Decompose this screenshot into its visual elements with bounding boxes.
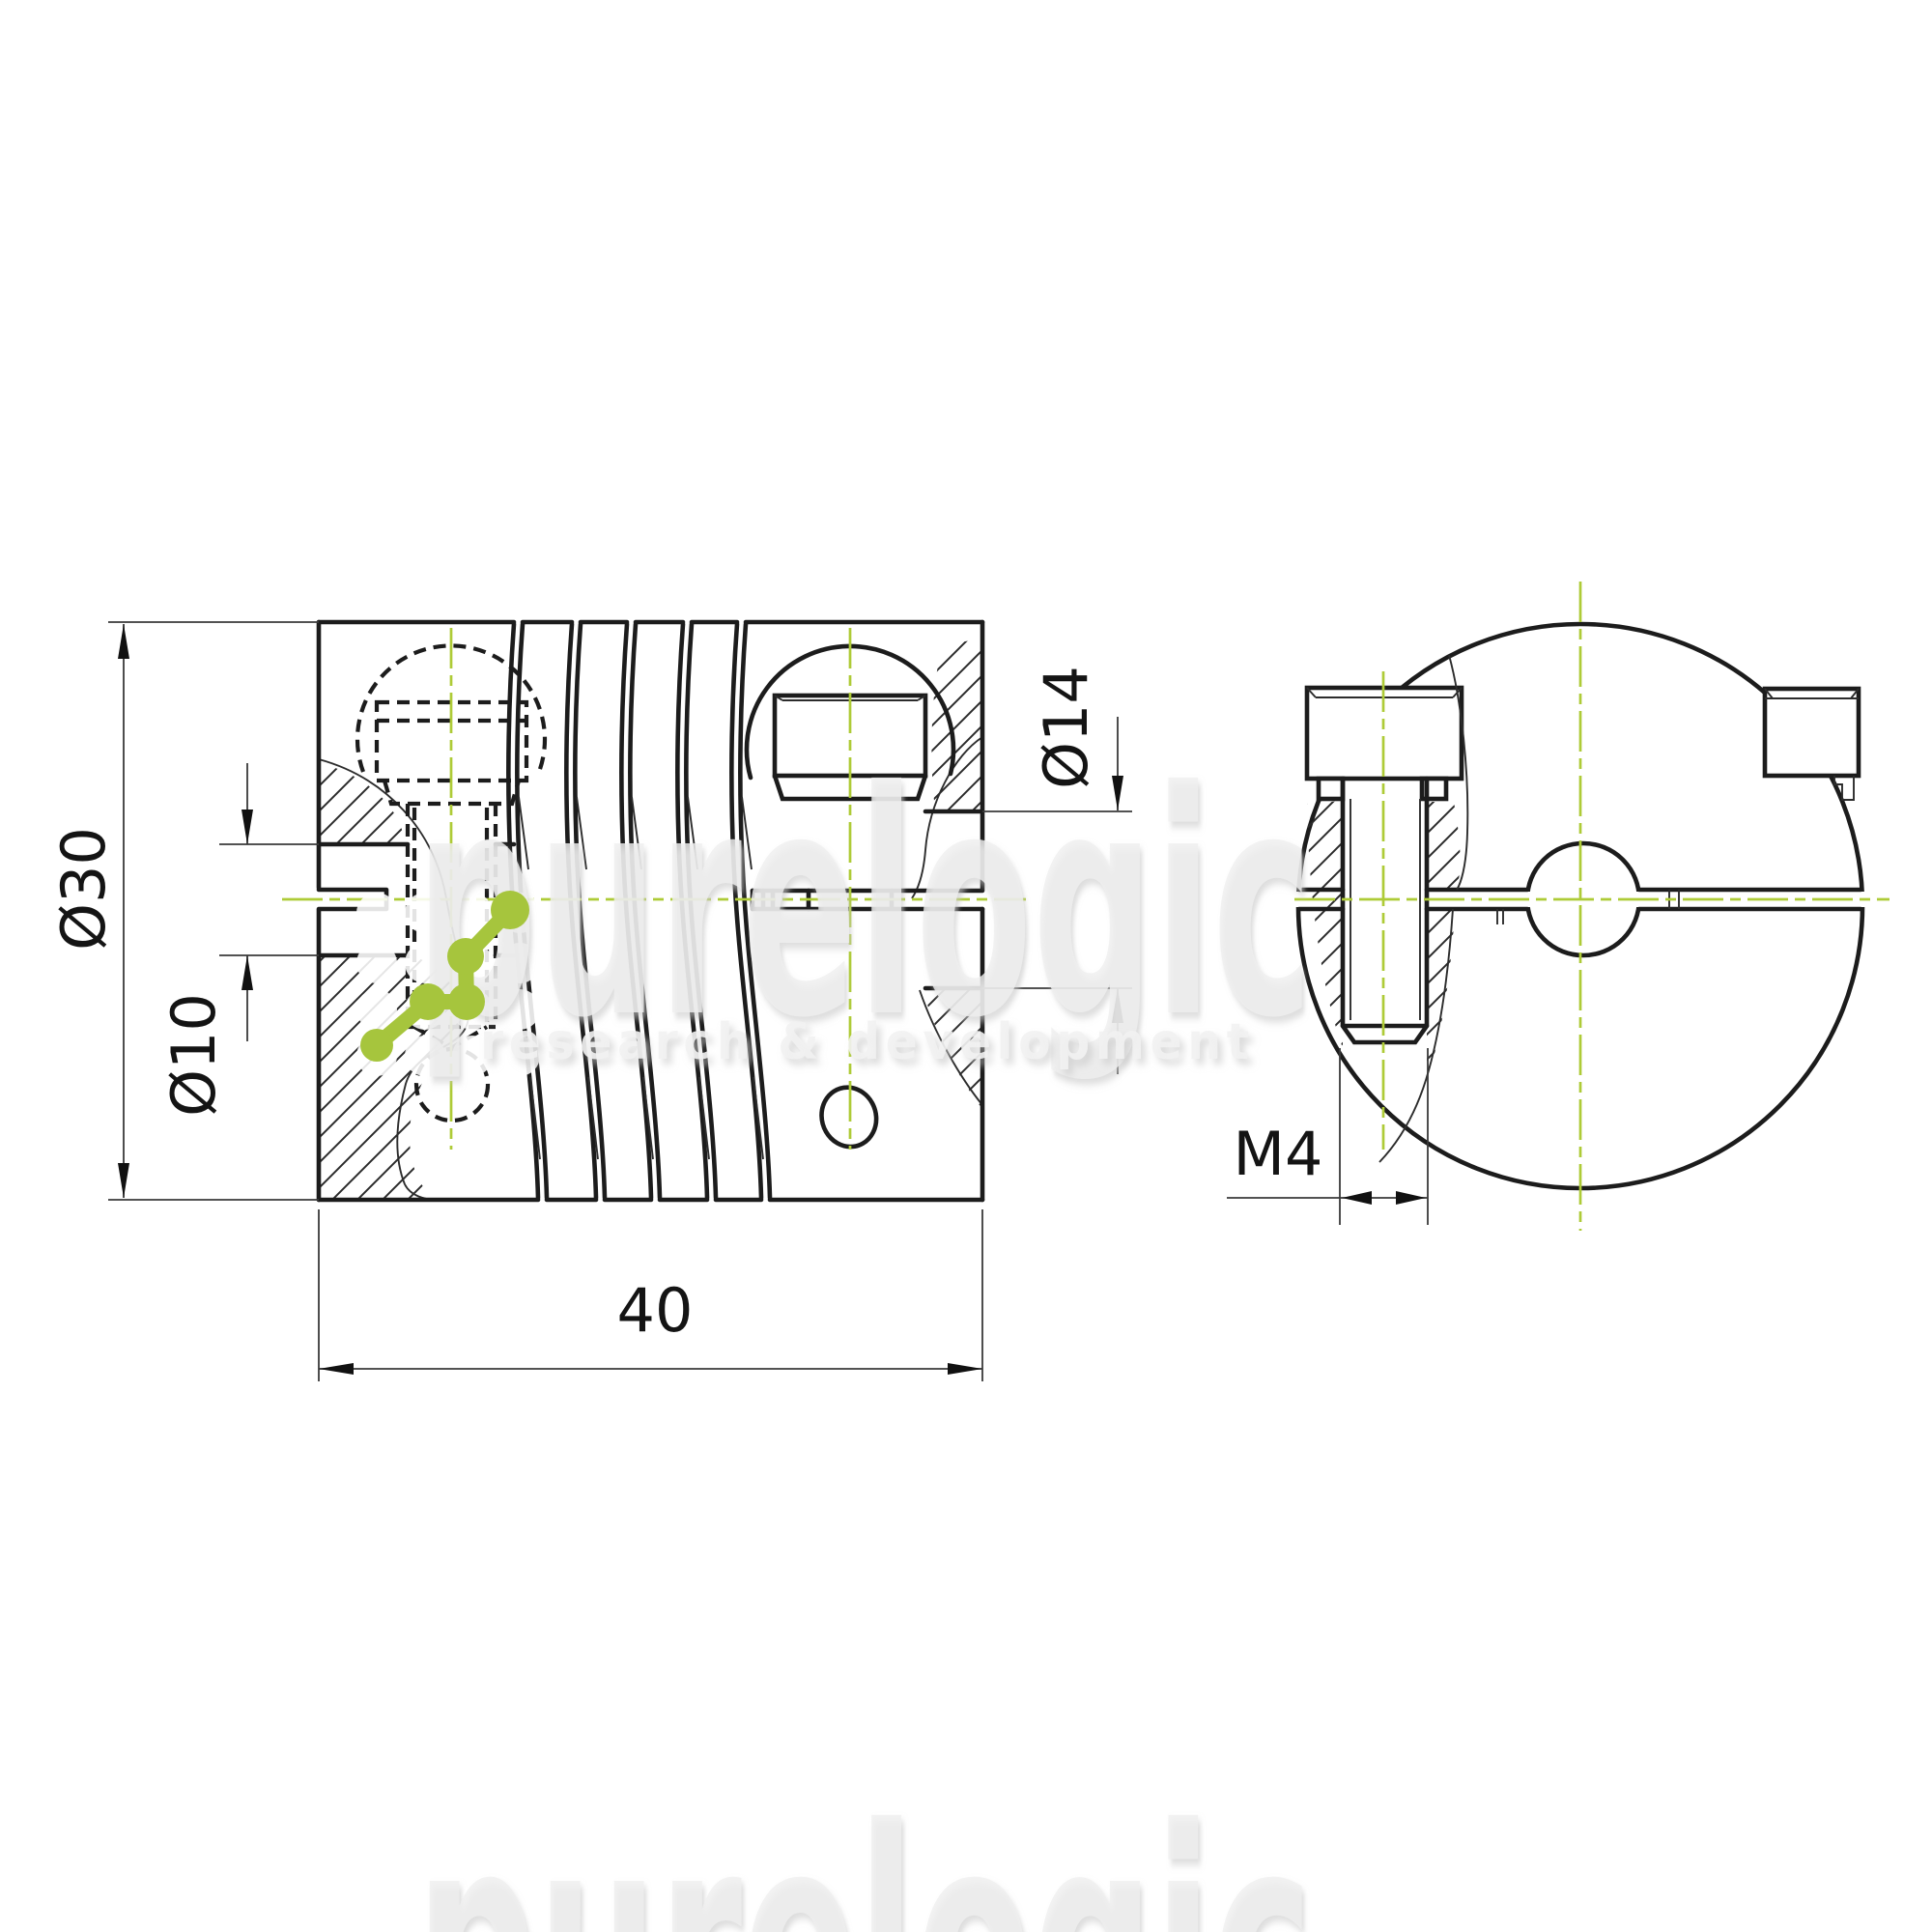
dimension-left-bore: Ø10 (158, 763, 319, 1117)
end-view (1291, 624, 1866, 1188)
watermark-brand-text-tile: purelogic (415, 1763, 1313, 1932)
dimension-length: 40 (319, 1209, 982, 1381)
label-length: 40 (617, 1275, 694, 1346)
label-thread: M4 (1234, 1119, 1323, 1189)
watermark-tagline-text: research & development (480, 1012, 1255, 1071)
far-boss (1765, 689, 1859, 800)
drawing-sheet: Ø30 Ø10 Ø14 40 M4 (0, 0, 1932, 1932)
label-left-bore: Ø10 (158, 993, 229, 1117)
label-outer-diameter: Ø30 (48, 827, 119, 951)
coupling-technical-drawing: Ø30 Ø10 Ø14 40 M4 (0, 0, 1932, 1932)
watermark: purelogic research & development purelog… (356, 725, 1313, 1932)
